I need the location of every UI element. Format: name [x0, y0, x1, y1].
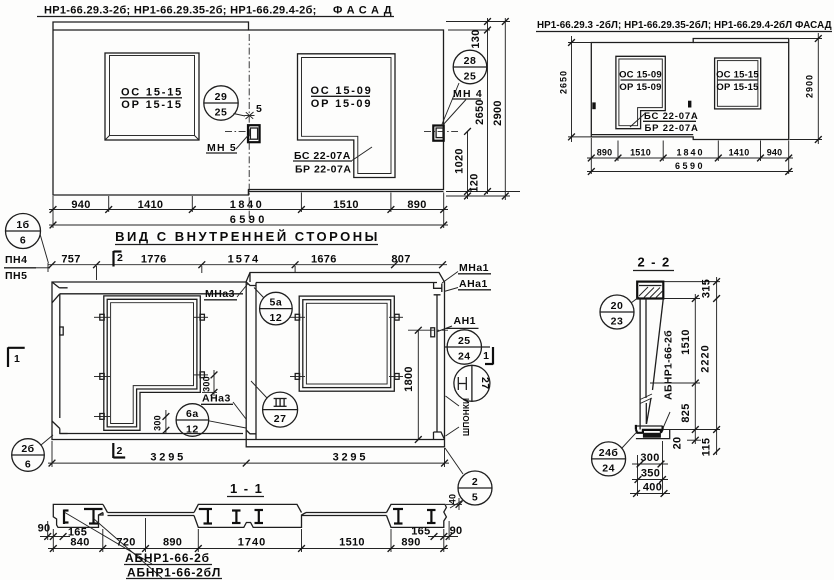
svg-text:5: 5: [256, 103, 262, 115]
svg-text:1: 1: [14, 353, 20, 365]
svg-text:2650: 2650: [559, 70, 569, 94]
svg-text:90: 90: [38, 523, 51, 535]
svg-text:МН 5: МН 5: [207, 142, 237, 154]
svg-text:ФАСАД: ФАСАД: [333, 5, 396, 17]
svg-text:300: 300: [153, 415, 163, 431]
svg-text:300: 300: [640, 452, 659, 464]
svg-text:6: 6: [20, 235, 26, 247]
svg-text:120: 120: [469, 173, 481, 192]
svg-text:НР1-66.29.3 -2бЛ; НР1-66.29.35: НР1-66.29.3 -2бЛ; НР1-66.29.35-2бЛ; НР1-…: [537, 20, 832, 31]
svg-text:6: 6: [25, 459, 31, 471]
svg-text:АНа3: АНа3: [202, 393, 231, 405]
svg-text:400: 400: [643, 482, 662, 494]
svg-text:825: 825: [680, 403, 692, 422]
svg-text:ОР 15-09: ОР 15-09: [619, 82, 661, 93]
svg-text:1676: 1676: [311, 254, 337, 266]
svg-text:3295: 3295: [150, 452, 186, 464]
svg-text:МН 4: МН 4: [453, 88, 483, 100]
svg-text:40: 40: [448, 494, 458, 504]
svg-text:6а: 6а: [186, 408, 199, 420]
svg-text:28: 28: [464, 55, 477, 67]
svg-text:ОР 15-15: ОР 15-15: [121, 99, 182, 111]
svg-text:АБНР1-66-2б: АБНР1-66-2б: [663, 330, 675, 400]
svg-text:90: 90: [450, 525, 463, 537]
svg-text:890: 890: [597, 148, 613, 158]
svg-text:ОС 15-15: ОС 15-15: [716, 70, 759, 81]
svg-text:940: 940: [767, 148, 783, 158]
svg-text:115: 115: [701, 438, 713, 457]
svg-text:2900: 2900: [805, 74, 815, 98]
svg-text:1510: 1510: [680, 329, 692, 355]
svg-text:1510: 1510: [630, 148, 651, 158]
svg-text:757: 757: [61, 254, 80, 266]
svg-text:12: 12: [270, 312, 283, 324]
svg-text:350: 350: [641, 468, 660, 480]
svg-text:890: 890: [401, 537, 420, 549]
svg-text:1б: 1б: [16, 219, 29, 231]
svg-text:МНа3: МНа3: [205, 288, 235, 300]
svg-text:ОР 15-15: ОР 15-15: [716, 82, 759, 93]
svg-text:24б: 24б: [599, 447, 619, 459]
svg-text:24: 24: [602, 462, 615, 474]
svg-text:1410: 1410: [729, 148, 750, 158]
svg-text:27: 27: [479, 377, 491, 390]
svg-text:5: 5: [472, 492, 478, 504]
svg-text:1840: 1840: [230, 199, 264, 211]
svg-text:ОС 15-09: ОС 15-09: [619, 70, 662, 81]
svg-text:2: 2: [117, 445, 123, 457]
svg-text:6590: 6590: [230, 214, 268, 226]
svg-text:25: 25: [464, 71, 477, 83]
svg-text:840: 840: [70, 537, 89, 549]
svg-text:БС 22-07А: БС 22-07А: [294, 150, 351, 162]
svg-text:ОС 15-09: ОС 15-09: [310, 85, 372, 97]
svg-text:ШПОНКИ: ШПОНКИ: [462, 398, 471, 436]
svg-text:807: 807: [391, 254, 410, 266]
svg-text:12: 12: [186, 424, 199, 436]
svg-text:315: 315: [701, 279, 713, 298]
svg-text:130: 130: [470, 29, 482, 48]
svg-text:20: 20: [611, 300, 624, 312]
svg-text:27: 27: [274, 413, 287, 425]
svg-text:ПН5: ПН5: [5, 270, 27, 282]
svg-text:940: 940: [71, 199, 90, 211]
svg-text:БС 22-07А: БС 22-07А: [644, 111, 699, 122]
svg-text:1840: 1840: [676, 148, 704, 158]
svg-text:1510: 1510: [333, 199, 359, 211]
svg-text:ВИД С ВНУТРЕННЕЙ СТОРОНЫ: ВИД С ВНУТРЕННЕЙ СТОРОНЫ: [115, 229, 380, 244]
svg-text:БР 22-07А: БР 22-07А: [645, 123, 699, 134]
svg-text:29: 29: [215, 91, 228, 103]
svg-text:МНа1: МНа1: [459, 262, 489, 274]
svg-text:1740: 1740: [238, 537, 266, 549]
svg-text:1800: 1800: [403, 366, 415, 392]
svg-text:АБНР1-66-2бЛ: АБНР1-66-2бЛ: [127, 566, 221, 580]
svg-text:25: 25: [215, 107, 228, 119]
svg-text:25: 25: [458, 335, 471, 347]
svg-text:2650: 2650: [474, 99, 486, 125]
svg-text:АБНР1-66-2б: АБНР1-66-2б: [125, 551, 210, 565]
svg-text:1-1: 1-1: [230, 481, 268, 496]
svg-text:20: 20: [672, 437, 684, 450]
svg-text:2б: 2б: [21, 443, 34, 455]
svg-text:890: 890: [407, 199, 426, 211]
svg-text:ОС 15-15: ОС 15-15: [121, 87, 183, 99]
svg-text:2900: 2900: [492, 100, 504, 126]
svg-text:6590: 6590: [675, 161, 705, 171]
svg-text:2-2: 2-2: [637, 255, 675, 270]
svg-text:2220: 2220: [700, 344, 712, 372]
svg-text:ОР 15-09: ОР 15-09: [311, 98, 372, 110]
svg-text:ПН4: ПН4: [5, 254, 27, 266]
svg-text:1574: 1574: [228, 254, 260, 266]
svg-text:1410: 1410: [138, 199, 164, 211]
svg-text:1020: 1020: [454, 148, 466, 174]
svg-text:АНа1: АНа1: [459, 278, 488, 290]
svg-text:23: 23: [611, 316, 624, 328]
svg-text:1510: 1510: [339, 537, 365, 549]
svg-text:2: 2: [117, 252, 123, 264]
svg-text:890: 890: [163, 537, 182, 549]
svg-text:3295: 3295: [333, 452, 369, 464]
svg-text:1776: 1776: [141, 254, 167, 266]
svg-text:1: 1: [483, 350, 489, 362]
svg-text:5а: 5а: [270, 297, 283, 309]
svg-text:БР 22-07А: БР 22-07А: [295, 164, 351, 176]
svg-text:300: 300: [202, 376, 212, 392]
svg-text:24: 24: [458, 351, 471, 363]
svg-text:АН1: АН1: [454, 315, 477, 327]
svg-text:НР1-66.29.3-2б; НР1-66.29.35-2: НР1-66.29.3-2б; НР1-66.29.35-2б; НР1-66.…: [44, 5, 317, 17]
svg-text:2: 2: [472, 476, 478, 488]
